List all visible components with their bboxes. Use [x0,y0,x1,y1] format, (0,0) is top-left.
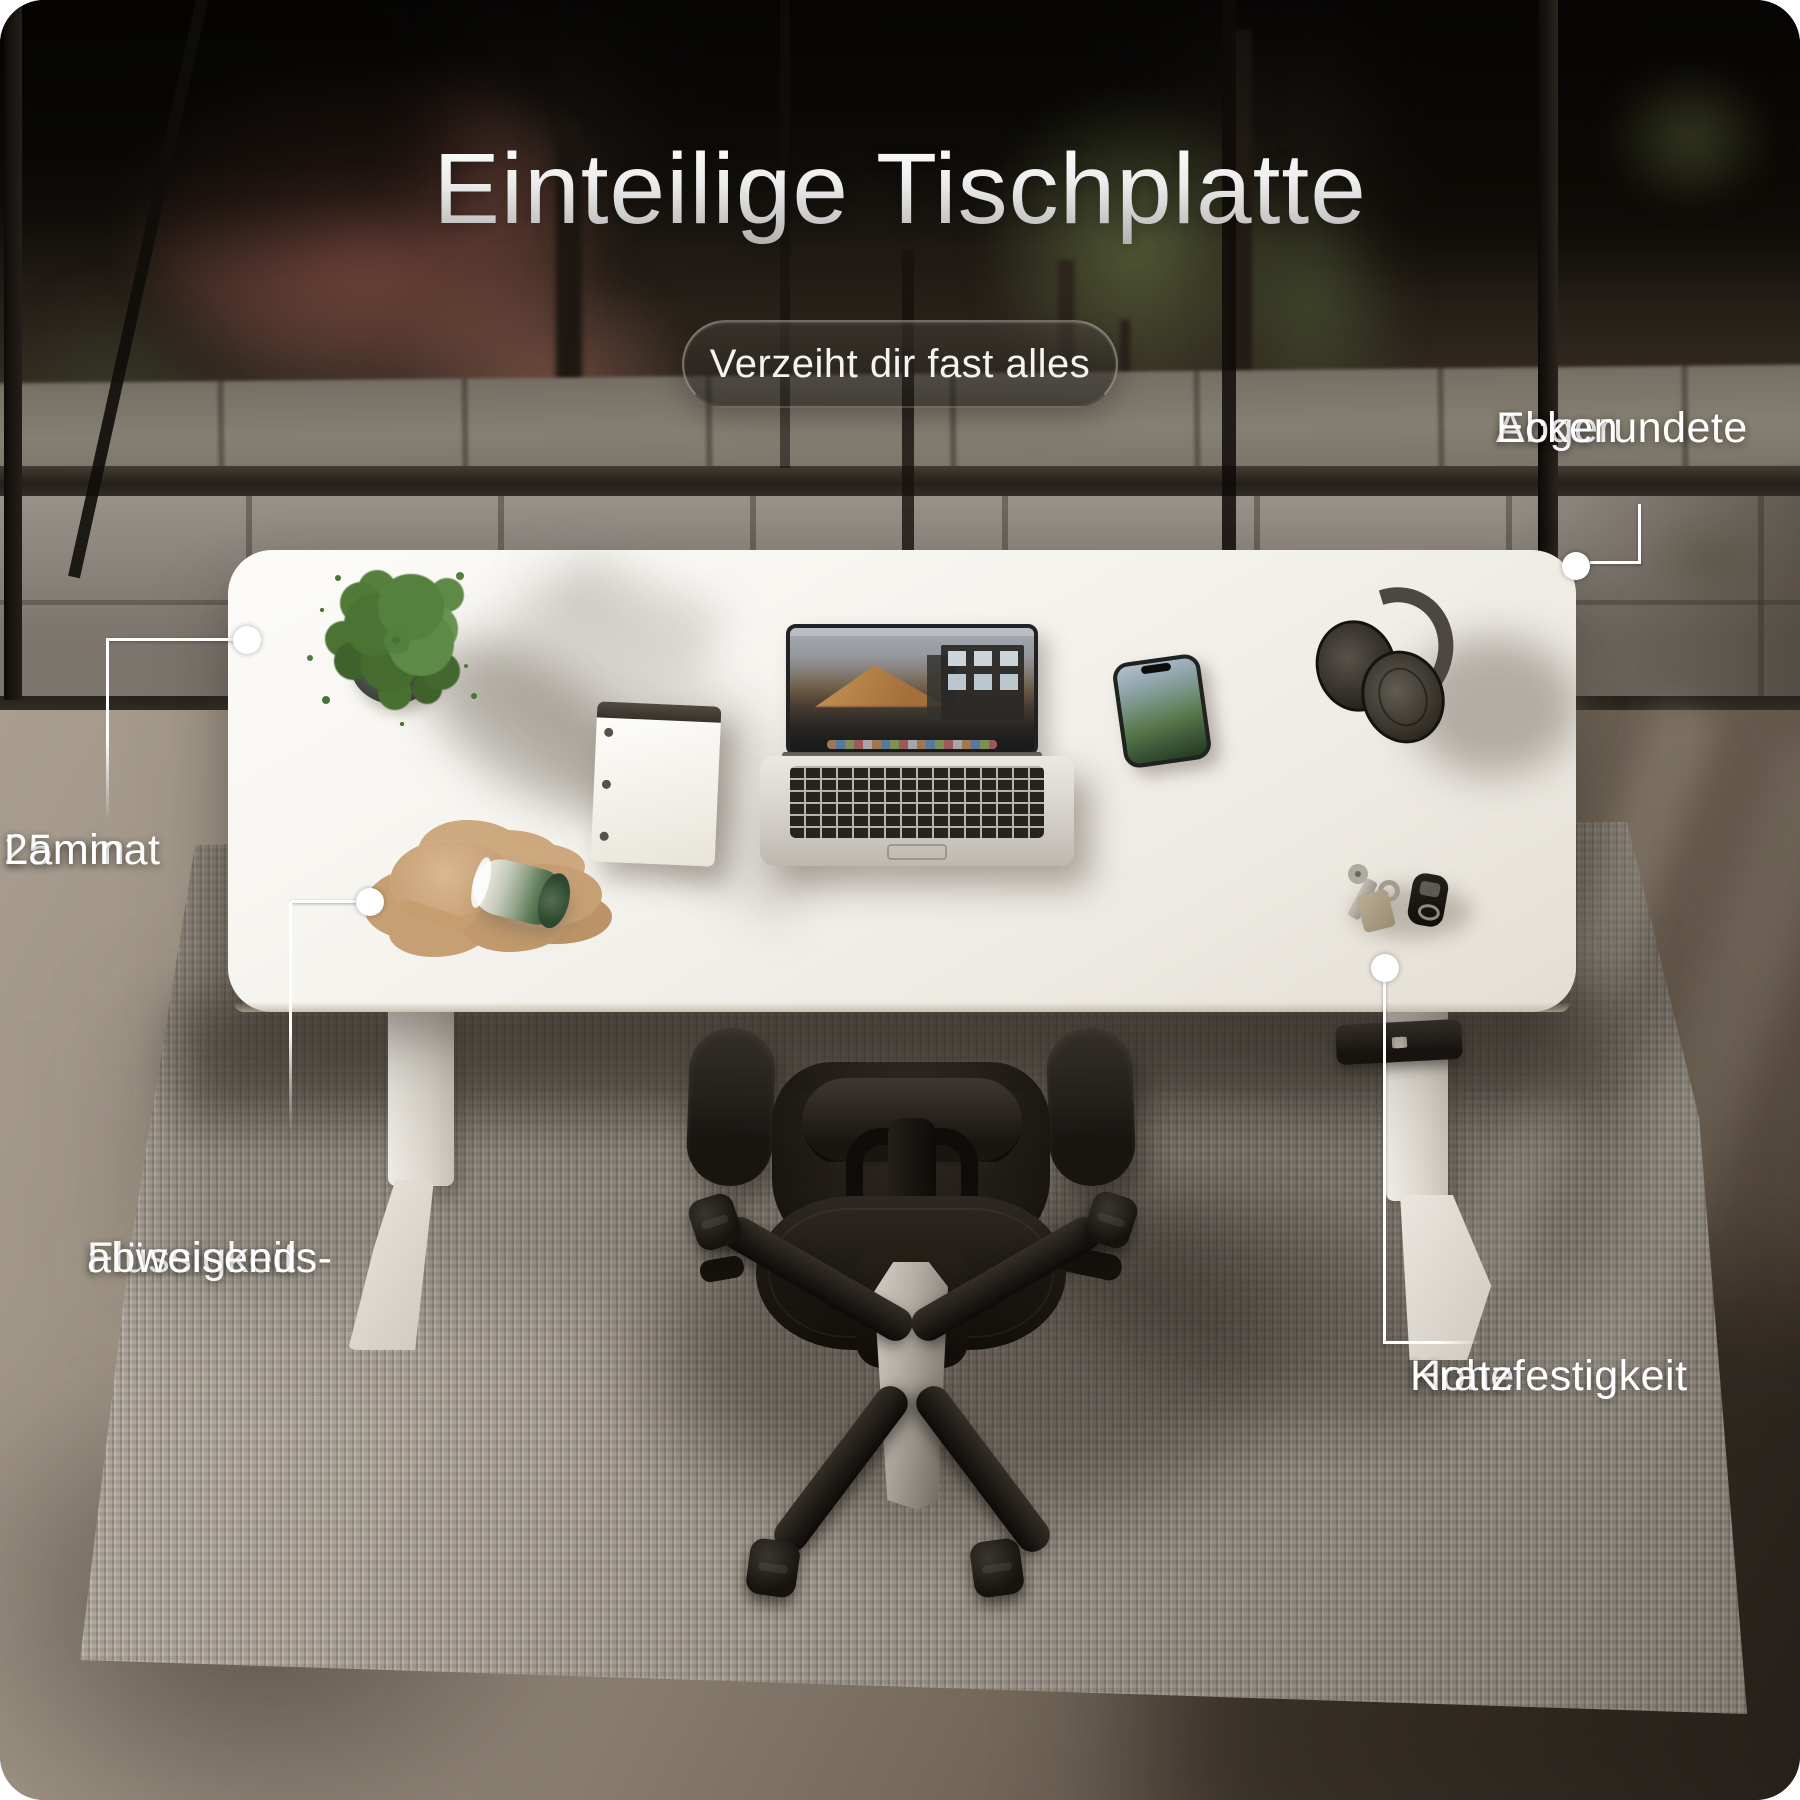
smartphone-screen [1116,657,1209,765]
window-mullion [1222,0,1236,562]
chair-caster [968,1537,1025,1599]
page-title: Einteilige Tischplatte [0,130,1800,248]
notepad [591,701,722,866]
desk-leg-left [388,1006,454,1186]
smartphone [1111,652,1213,769]
subtitle-badge-label: Verzeiht dir fast alles [710,342,1091,387]
product-infographic: Einteilige Tischplatte Verzeiht dir fast… [0,0,1800,1800]
callout-line-text: abweisend [87,1232,297,1285]
callout-dot [356,888,384,916]
callout-line-text: Laminat [4,824,160,877]
menu-bar [790,628,1034,636]
callout-connector [1638,504,1641,564]
laptop-keyboard [790,766,1044,838]
callout-dot [1562,552,1590,580]
key-head [1348,864,1368,884]
dock [827,740,998,749]
desk-height-controller [1335,1019,1463,1066]
callout-connector [1383,980,1386,1344]
callout-line-text: Ecken [1496,402,1618,455]
callout-line-text: Kratzfestigkeit [1410,1350,1688,1403]
controller-button [1394,1036,1404,1047]
callout-connector [1385,1341,1481,1344]
callout-connector [289,902,292,1134]
chair-caster [744,1537,801,1599]
window-mullion [4,0,22,700]
callout-connector [106,638,109,820]
window-mullion [1538,0,1558,566]
callout-dot [233,626,261,654]
callout-connector [1590,561,1641,564]
chair-armrest-left [685,1027,776,1188]
callout-connector [108,638,236,641]
app-window [941,645,1024,719]
window-rail [0,466,1800,496]
chair-armrest-right [1045,1027,1136,1188]
callout-dot [1371,954,1399,982]
callout-connector [291,900,359,903]
laptop-screen [786,624,1038,756]
laptop-trackpad [887,844,947,860]
plant-tendrils [392,636,400,644]
subtitle-badge: Verzeiht dir fast alles [682,320,1118,408]
notepad-holes [604,728,613,737]
